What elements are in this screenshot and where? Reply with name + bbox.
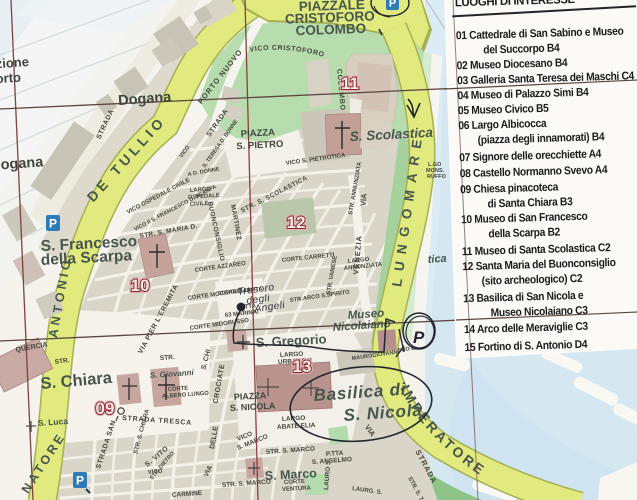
svg-text:RUFFO: RUFFO (427, 174, 447, 180)
svg-text:del Succorpo B4: del Succorpo B4 (483, 42, 560, 57)
svg-text:zione: zione (0, 54, 29, 71)
svg-text:COLOMBO: COLOMBO (295, 21, 366, 38)
svg-text:STR.: STR. (160, 354, 175, 362)
svg-text:12: 12 (287, 213, 306, 232)
svg-text:09: 09 (96, 399, 115, 418)
svg-text:VIA: VIA (358, 193, 368, 207)
svg-text:10: 10 (131, 276, 150, 295)
svg-text:05 Museo Civico B5: 05 Museo Civico B5 (458, 102, 549, 117)
svg-text:tica: tica (427, 253, 447, 266)
svg-text:di Santa Chiara B3: di Santa Chiara B3 (487, 196, 572, 211)
svg-text:P: P (49, 217, 57, 231)
svg-text:06 Largo Albicocca: 06 Largo Albicocca (458, 117, 547, 132)
svg-text:S. Luca: S. Luca (37, 416, 68, 428)
svg-text:P: P (76, 474, 84, 488)
svg-text:orto: orto (0, 70, 21, 87)
svg-text:P: P (389, 0, 396, 10)
svg-text:13: 13 (293, 357, 312, 376)
svg-text:PIAZZA: PIAZZA (240, 127, 275, 140)
svg-text:PIAZZA: PIAZZA (234, 390, 267, 402)
svg-text:P: P (413, 328, 425, 347)
svg-text:della Scarpa B2: della Scarpa B2 (488, 226, 560, 241)
svg-text:CORTE: CORTE (284, 479, 305, 486)
svg-text:11: 11 (341, 74, 359, 93)
